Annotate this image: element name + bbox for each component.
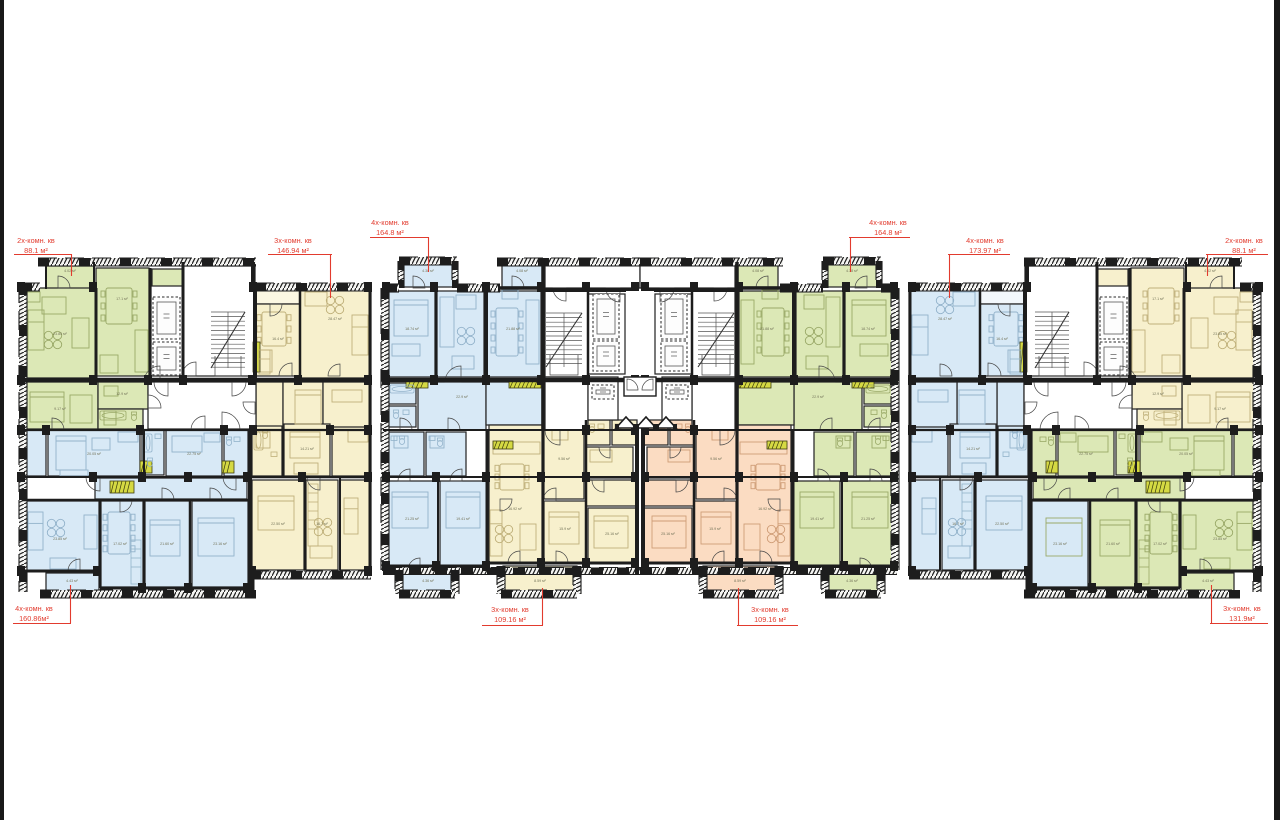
- svg-text:17.1 м²: 17.1 м²: [116, 297, 128, 301]
- svg-text:20.05 м²: 20.05 м²: [87, 452, 101, 456]
- svg-text:28.47 м²: 28.47 м²: [938, 317, 952, 321]
- svg-text:4.08 м²: 4.08 м²: [516, 269, 528, 273]
- svg-text:16.4 м²: 16.4 м²: [996, 337, 1008, 341]
- svg-text:12.9 м²: 12.9 м²: [1152, 392, 1164, 396]
- svg-text:17.02 м²: 17.02 м²: [113, 542, 127, 546]
- svg-text:8.59 м²: 8.59 м²: [734, 579, 746, 583]
- svg-text:3х-комн. кв: 3х-комн. кв: [751, 605, 789, 614]
- svg-text:4.36 м²: 4.36 м²: [422, 579, 434, 583]
- svg-text:4х-комн. кв: 4х-комн. кв: [15, 604, 53, 613]
- svg-text:17.1 м²: 17.1 м²: [1152, 297, 1164, 301]
- svg-text:15.9 м²: 15.9 м²: [709, 527, 721, 531]
- svg-text:21.25 м²: 21.25 м²: [861, 517, 875, 521]
- svg-text:4х-комн. кв: 4х-комн. кв: [966, 236, 1004, 245]
- svg-text:21.88 м²: 21.88 м²: [506, 327, 520, 331]
- svg-text:19.41 м²: 19.41 м²: [456, 517, 470, 521]
- svg-text:23.85 м²: 23.85 м²: [1213, 332, 1227, 336]
- svg-text:4.08 м²: 4.08 м²: [752, 269, 764, 273]
- svg-text:23.85 м²: 23.85 м²: [53, 537, 67, 541]
- svg-text:4.43 м²: 4.43 м²: [66, 579, 78, 583]
- svg-text:146.94 м²: 146.94 м²: [277, 246, 309, 255]
- svg-text:4.02 м²: 4.02 м²: [1204, 269, 1216, 273]
- svg-text:9.56 м²: 9.56 м²: [710, 457, 722, 461]
- svg-text:4.43 м²: 4.43 м²: [1202, 579, 1214, 583]
- svg-text:17.02 м²: 17.02 м²: [1153, 542, 1167, 546]
- svg-text:28.47 м²: 28.47 м²: [328, 317, 342, 321]
- svg-text:2х-комн. кв: 2х-комн. кв: [1225, 236, 1263, 245]
- svg-text:18.74 м²: 18.74 м²: [405, 327, 419, 331]
- svg-text:160.86м²: 160.86м²: [19, 614, 49, 623]
- svg-text:109.16 м²: 109.16 м²: [494, 615, 526, 624]
- svg-text:88.1 м²: 88.1 м²: [24, 246, 48, 255]
- svg-text:15.9 м²: 15.9 м²: [559, 527, 571, 531]
- svg-text:23.16 м²: 23.16 м²: [1053, 542, 1067, 546]
- svg-text:20.05 м²: 20.05 м²: [1179, 452, 1193, 456]
- svg-text:2х-комн. кв: 2х-комн. кв: [17, 236, 55, 245]
- svg-text:173.97 м²: 173.97 м²: [969, 246, 1001, 255]
- svg-text:14.21 м²: 14.21 м²: [300, 447, 314, 451]
- svg-text:23.16 м²: 23.16 м²: [213, 542, 227, 546]
- svg-text:22.50 м²: 22.50 м²: [271, 522, 285, 526]
- svg-text:164.8 м²: 164.8 м²: [376, 228, 404, 237]
- svg-text:3х-комн. кв: 3х-комн. кв: [274, 236, 312, 245]
- svg-text:16.4 м²: 16.4 м²: [272, 337, 284, 341]
- svg-text:9.56 м²: 9.56 м²: [558, 457, 570, 461]
- svg-text:16.92 м²: 16.92 м²: [758, 507, 772, 511]
- svg-text:9.17 м²: 9.17 м²: [54, 407, 66, 411]
- svg-text:22.75 м²: 22.75 м²: [187, 452, 201, 456]
- svg-text:3х-комн. кв: 3х-комн. кв: [1223, 604, 1261, 613]
- svg-text:18.74 м²: 18.74 м²: [861, 327, 875, 331]
- svg-text:22.50 м²: 22.50 м²: [995, 522, 1009, 526]
- svg-text:12.9 м²: 12.9 м²: [116, 392, 128, 396]
- svg-text:25.16 м²: 25.16 м²: [661, 532, 675, 536]
- svg-text:23.85 м²: 23.85 м²: [1213, 537, 1227, 541]
- svg-text:22.9 м²: 22.9 м²: [456, 395, 468, 399]
- svg-text:22.9 м²: 22.9 м²: [812, 395, 824, 399]
- svg-text:16.92 м²: 16.92 м²: [508, 507, 522, 511]
- svg-text:4.36 м²: 4.36 м²: [846, 579, 858, 583]
- svg-text:4.38 м²: 4.38 м²: [846, 269, 858, 273]
- svg-text:4.02 м²: 4.02 м²: [64, 269, 76, 273]
- svg-text:131.9м²: 131.9м²: [1229, 614, 1255, 623]
- svg-text:9.17 м²: 9.17 м²: [1214, 407, 1226, 411]
- svg-text:164.8 м²: 164.8 м²: [874, 228, 902, 237]
- svg-text:22.75 м²: 22.75 м²: [1079, 452, 1093, 456]
- svg-text:3х-комн. кв: 3х-комн. кв: [491, 605, 529, 614]
- svg-text:4х-комн. кв: 4х-комн. кв: [371, 218, 409, 227]
- svg-text:16.7 м²: 16.7 м²: [316, 522, 328, 526]
- svg-text:4х-комн. кв: 4х-комн. кв: [869, 218, 907, 227]
- svg-text:21.60 м²: 21.60 м²: [1106, 542, 1120, 546]
- svg-text:25.16 м²: 25.16 м²: [605, 532, 619, 536]
- svg-text:19.41 м²: 19.41 м²: [810, 517, 824, 521]
- svg-text:23.85 м²: 23.85 м²: [53, 332, 67, 336]
- svg-text:109.16 м²: 109.16 м²: [754, 615, 786, 624]
- svg-text:21.88 м²: 21.88 м²: [760, 327, 774, 331]
- svg-text:8.59 м²: 8.59 м²: [534, 579, 546, 583]
- svg-text:16.7 м²: 16.7 м²: [952, 522, 964, 526]
- svg-text:14.21 м²: 14.21 м²: [966, 447, 980, 451]
- svg-text:21.25 м²: 21.25 м²: [405, 517, 419, 521]
- svg-text:21.60 м²: 21.60 м²: [160, 542, 174, 546]
- svg-text:88.1 м²: 88.1 м²: [1232, 246, 1256, 255]
